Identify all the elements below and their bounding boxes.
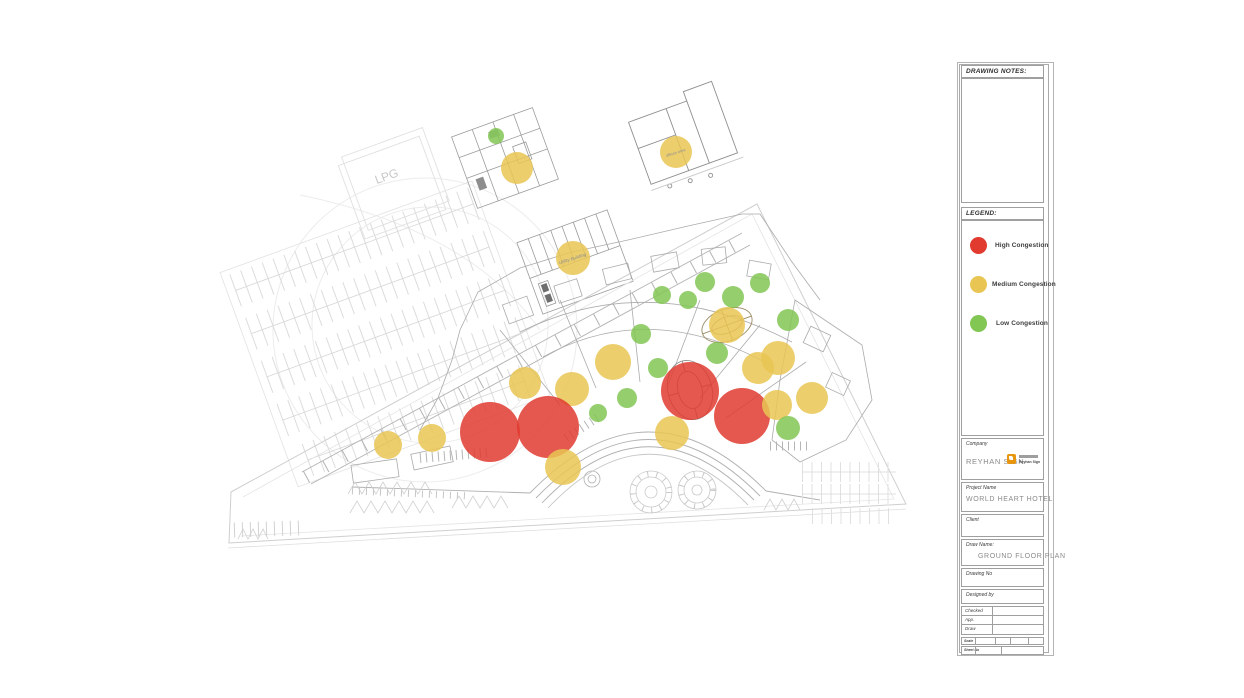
congestion-marker-low <box>653 286 671 304</box>
low-congestion-dot <box>970 315 987 332</box>
draw-name-label: Draw Name: <box>966 542 994 548</box>
legend-row-high: High Congestion <box>962 237 1045 255</box>
company-logo: Reyhan Sign <box>1007 453 1039 468</box>
draw-label: Draw <box>965 626 976 631</box>
project-value: WORLD HEART HOTEL <box>966 496 1053 503</box>
high-congestion-label: High Congestion <box>995 242 1049 249</box>
drawing-no-label: Drawing No <box>966 571 992 577</box>
scale-row: Scale <box>961 637 1044 645</box>
congestion-marker-low <box>750 273 770 293</box>
congestion-marker-low <box>648 358 668 378</box>
approval-row-app: App. <box>962 616 1043 625</box>
congestion-marker-medium <box>742 352 774 384</box>
congestion-marker-low <box>617 388 637 408</box>
legend-header: LEGEND: <box>961 207 1044 220</box>
congestion-marker-high <box>661 362 719 420</box>
drawing-notes-label: DRAWING NOTES: <box>962 66 1043 75</box>
congestion-marker-low <box>695 272 715 292</box>
legend-row-low: Low Congestion <box>962 315 1045 333</box>
medium-congestion-label: Medium Congestion <box>992 281 1056 288</box>
congestion-marker-low <box>777 309 799 331</box>
congestion-marker-low <box>776 416 800 440</box>
designed-by-label: Designed by <box>966 592 994 598</box>
congestion-marker-medium <box>655 416 689 450</box>
congestion-marker-low <box>722 286 744 308</box>
checked-label: Checked <box>965 608 983 613</box>
approval-table: Checked App. Draw <box>961 606 1044 635</box>
draw-name-value: GROUND FLOOR PLAN <box>978 553 1066 560</box>
congestion-marker-high <box>714 388 770 444</box>
drawing-sheet: LPGUtility Buildingoffices area DRAWING … <box>0 0 1244 698</box>
drawing-no-box: Drawing No <box>961 568 1044 587</box>
drawing-notes-header: DRAWING NOTES: <box>961 65 1044 78</box>
client-label: Client <box>966 517 979 523</box>
congestion-marker-medium <box>418 424 446 452</box>
congestion-marker-medium <box>709 307 745 343</box>
sheet-no-label: Sheet No <box>964 648 979 652</box>
scale-label: Scale <box>964 639 973 643</box>
approval-row-checked: Checked <box>962 607 1043 616</box>
congestion-marker-medium <box>595 344 631 380</box>
company-label: Company <box>966 441 987 447</box>
company-logo-arabic-text <box>1019 455 1038 458</box>
congestion-marker-low <box>679 291 697 309</box>
company-box: Company REYHAN SIGN Reyhan Sign <box>961 438 1044 480</box>
approval-row-draw: Draw <box>962 625 1043 635</box>
congestion-marker-high <box>517 396 579 458</box>
company-logo-icon <box>1007 454 1016 464</box>
floor-plan-canvas: LPGUtility Buildingoffices area <box>0 0 1244 698</box>
congestion-marker-medium <box>374 431 402 459</box>
client-box: Client <box>961 514 1044 537</box>
congestion-marker-medium <box>501 152 533 184</box>
congestion-marker-low <box>488 128 504 144</box>
congestion-marker-high <box>460 402 520 462</box>
congestion-marker-low <box>589 404 607 422</box>
plan-label: LPG <box>373 166 400 187</box>
congestion-marker-low <box>706 342 728 364</box>
congestion-marker-medium <box>545 449 581 485</box>
app-label: App. <box>965 617 974 622</box>
legend-box: High Congestion Medium Congestion Low Co… <box>961 220 1044 436</box>
legend-label: LEGEND: <box>962 208 1043 217</box>
company-logo-text: Reyhan Sign <box>1019 460 1040 464</box>
draw-name-box: Draw Name: GROUND FLOOR PLAN <box>961 539 1044 566</box>
high-congestion-dot <box>970 237 987 254</box>
sheet-no-row: Sheet No <box>961 646 1044 655</box>
title-block: DRAWING NOTES: LEGEND: High Congestion M… <box>957 62 1054 656</box>
medium-congestion-dot <box>970 276 987 293</box>
project-box: Project Name WORLD HEART HOTEL <box>961 482 1044 512</box>
congestion-marker-medium <box>509 367 541 399</box>
legend-row-medium: Medium Congestion <box>962 276 1045 294</box>
project-label: Project Name <box>966 485 996 491</box>
low-congestion-label: Low Congestion <box>996 320 1048 327</box>
designed-by-box: Designed by <box>961 589 1044 604</box>
congestion-marker-low <box>631 324 651 344</box>
drawing-notes-box <box>961 78 1044 203</box>
fountain-linework <box>630 471 716 513</box>
congestion-marker-medium <box>762 390 792 420</box>
congestion-marker-medium <box>796 382 828 414</box>
